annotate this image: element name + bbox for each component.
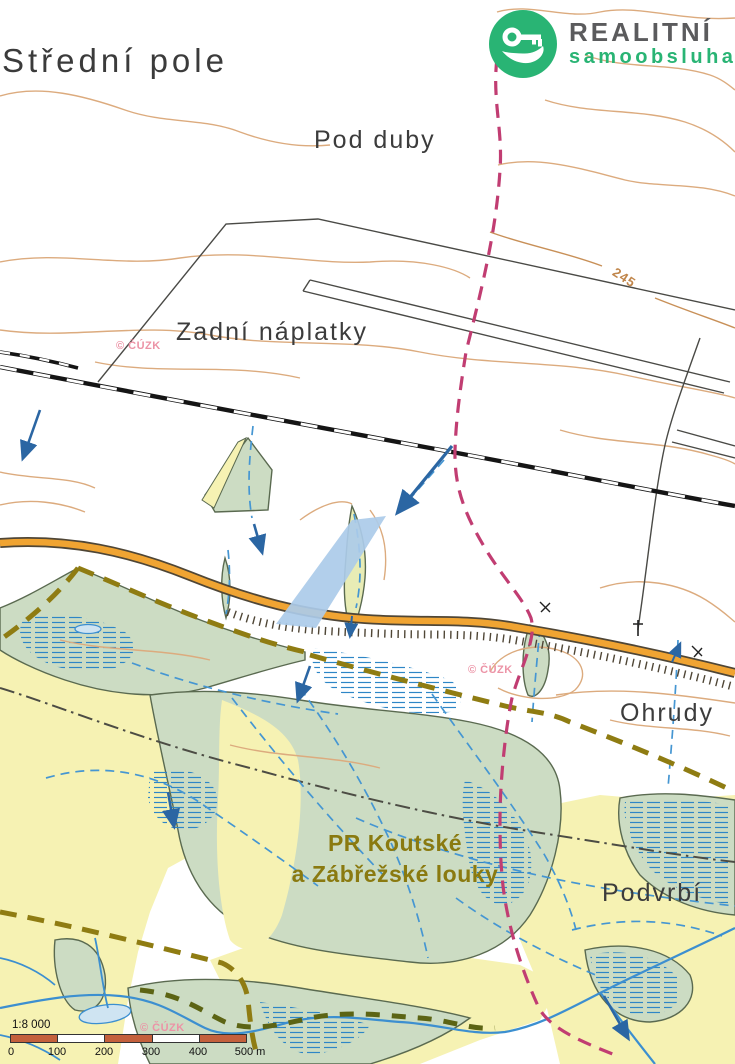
map-label-nature-reserve: PR Koutské a Zábřežské louky	[285, 828, 505, 890]
scale-tick: 400	[189, 1046, 207, 1058]
map-label-pod-duby: Pod duby	[314, 126, 436, 155]
scale-tick: 100	[48, 1046, 66, 1058]
cuzk-watermark: © ČÚZK	[116, 340, 161, 352]
scale-tick: 0	[8, 1046, 14, 1058]
reserve-label-line2: a Zábřežské louky	[285, 859, 505, 890]
reserve-label-line1: PR Koutské	[285, 828, 505, 859]
map-viewport: Střední pole Pod duby Zadní náplatky Ohr…	[0, 0, 735, 1064]
scale-ticks: 0 100 200 300 400 500 m	[0, 1046, 300, 1060]
scale-segment	[105, 1035, 151, 1042]
scale-tick: 200	[95, 1046, 113, 1058]
scale-segment	[200, 1035, 246, 1042]
scale-bar-segments	[10, 1034, 247, 1043]
map-label-ohrudy: Ohrudy	[620, 699, 714, 728]
map-label-stredni-pole: Střední pole	[2, 42, 228, 80]
brand-subtitle: samoobsluha	[569, 45, 735, 69]
scale-bar: 1:8 000 0 100 200 300 400 500 m	[0, 1016, 300, 1064]
map-label-zadni-naplatky: Zadní náplatky	[176, 318, 368, 347]
scale-segment	[152, 1035, 200, 1042]
key-in-hand-icon	[489, 10, 557, 78]
cuzk-watermark: © ČÚZK	[468, 664, 513, 676]
scale-segment	[11, 1035, 57, 1042]
brand-logo: REALITNÍ samoobsluha	[489, 10, 735, 78]
scale-tick: 300	[142, 1046, 160, 1058]
brand-name: REALITNÍ	[569, 19, 735, 45]
map-label-podvrbi: Podvrbí	[602, 879, 702, 908]
scale-tick: 500 m	[235, 1046, 266, 1058]
scale-segment	[57, 1035, 105, 1042]
scale-ratio: 1:8 000	[12, 1019, 50, 1031]
